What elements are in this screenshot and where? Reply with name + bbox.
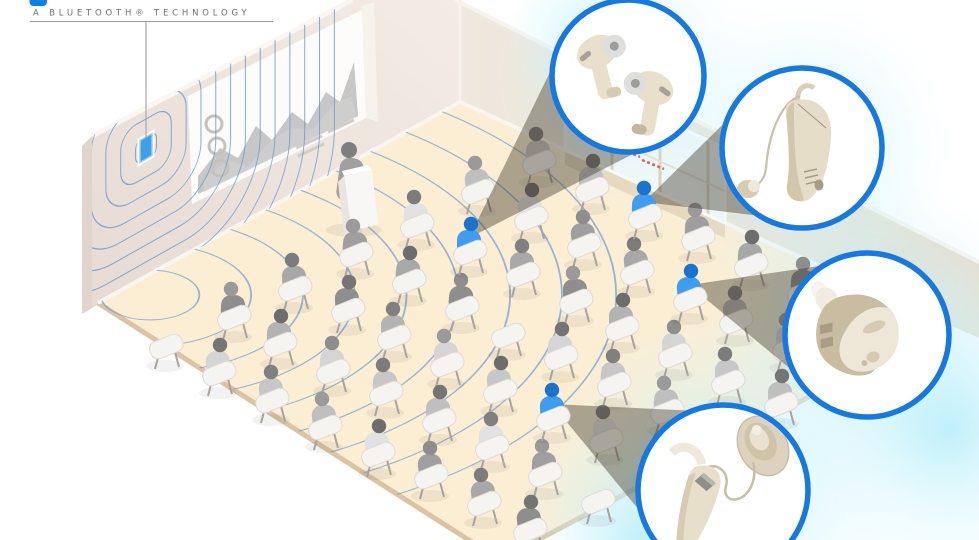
auracast-logo-mark — [30, 0, 48, 6]
callout-circle-in-ear-hearing-aid — [785, 253, 949, 417]
callout-circle-earbuds — [552, 0, 704, 152]
left-wall-edge-face — [82, 136, 92, 314]
logo-tagline: A BLUETOOTH® TECHNOLOGY — [33, 9, 250, 19]
auracast-lecture-hall-illustration: A BLUETOOTH® TECHNOLOGY — [0, 0, 979, 540]
illustration-canvas: A BLUETOOTH® TECHNOLOGY — [0, 0, 979, 540]
callout-circle-bte-hearing-aid — [722, 68, 882, 228]
